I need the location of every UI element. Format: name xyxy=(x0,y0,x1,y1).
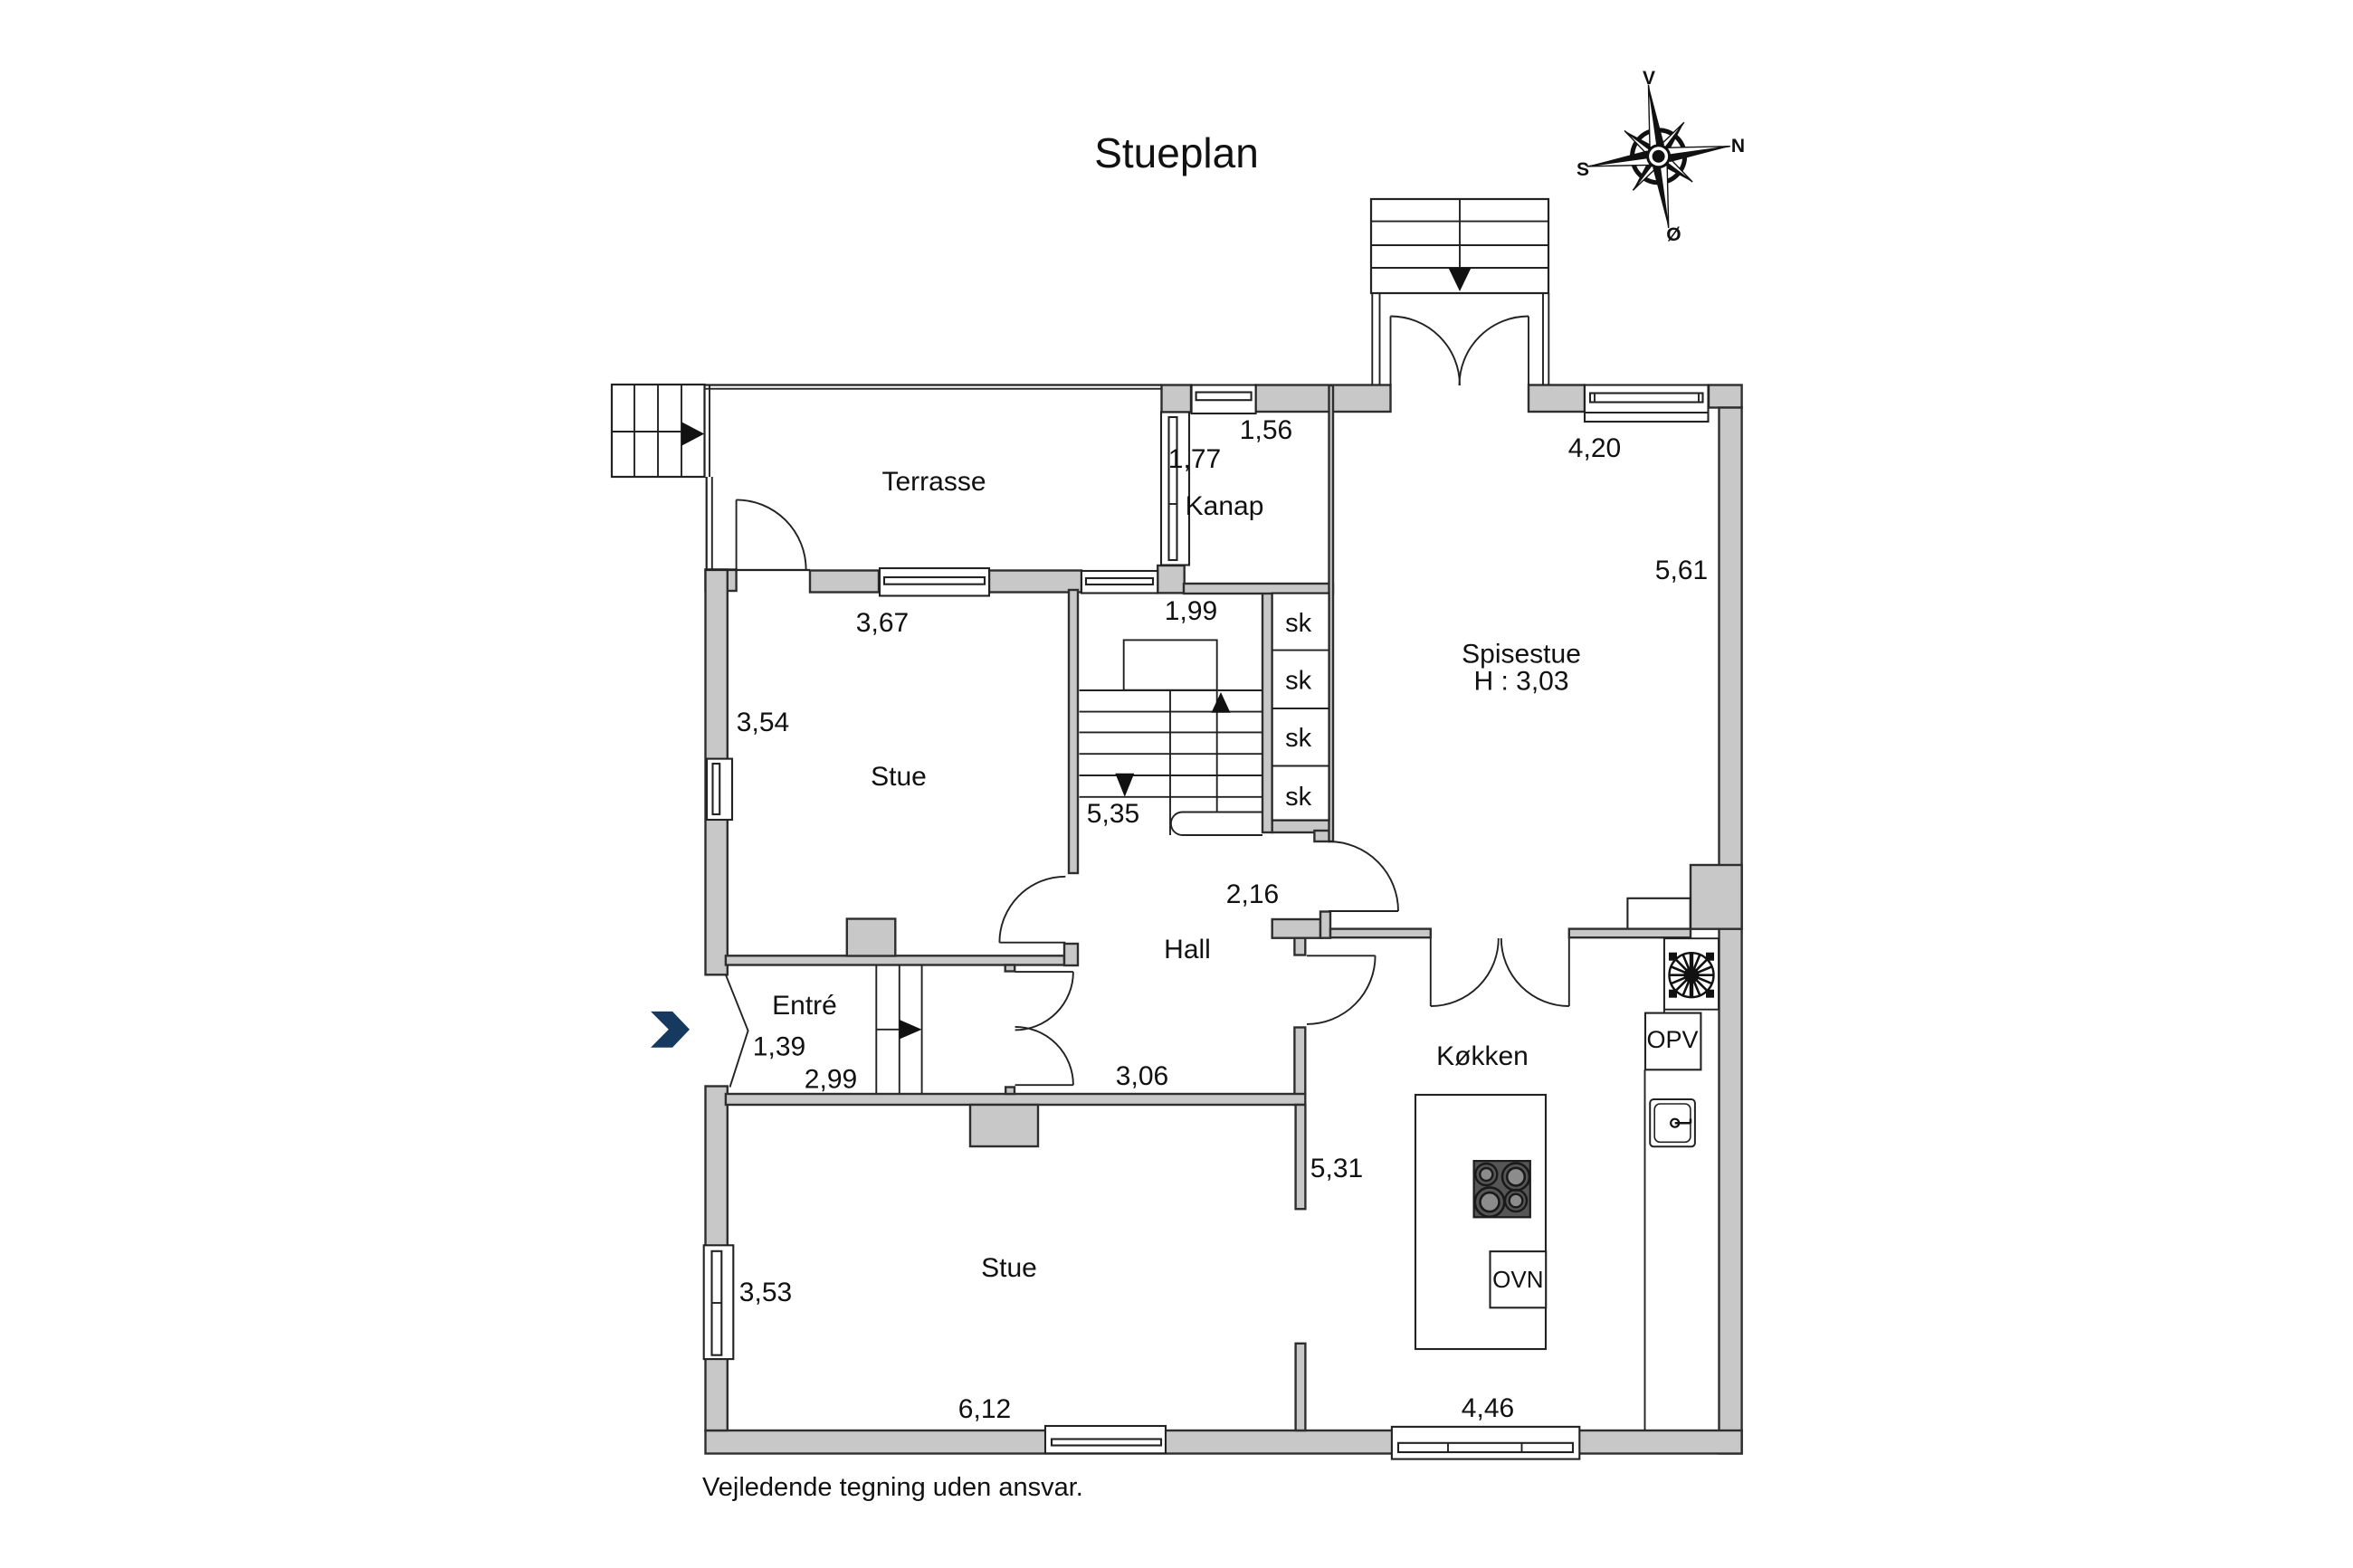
svg-text:Entré: Entré xyxy=(772,991,837,1021)
svg-text:2,16: 2,16 xyxy=(1226,879,1279,909)
svg-text:4,46: 4,46 xyxy=(1462,1393,1514,1423)
svg-text:2,99: 2,99 xyxy=(805,1065,857,1095)
svg-text:3,06: 3,06 xyxy=(1116,1061,1168,1091)
svg-text:Køkken: Køkken xyxy=(1436,1041,1529,1071)
svg-text:1,39: 1,39 xyxy=(753,1032,805,1062)
svg-text:Ø: Ø xyxy=(1666,224,1681,245)
svg-text:1,56: 1,56 xyxy=(1240,415,1292,445)
svg-text:1,77: 1,77 xyxy=(1168,444,1221,474)
svg-text:N: N xyxy=(1731,136,1745,157)
svg-text:sk: sk xyxy=(1285,783,1312,812)
svg-text:Terrasse: Terrasse xyxy=(881,467,986,497)
svg-text:OPV: OPV xyxy=(1646,1026,1698,1053)
svg-text:6,12: 6,12 xyxy=(958,1394,1011,1424)
svg-text:5,35: 5,35 xyxy=(1087,799,1139,829)
svg-text:Kanap: Kanap xyxy=(1186,491,1264,521)
svg-text:Stue: Stue xyxy=(871,762,927,792)
svg-text:5,61: 5,61 xyxy=(1655,556,1708,585)
svg-text:3,53: 3,53 xyxy=(739,1278,792,1307)
svg-text:Vejledende tegning uden ansvar: Vejledende tegning uden ansvar. xyxy=(702,1473,1083,1502)
svg-text:sk: sk xyxy=(1285,609,1312,638)
svg-text:H : 3,03: H : 3,03 xyxy=(1473,667,1568,697)
svg-text:3,54: 3,54 xyxy=(737,708,789,737)
svg-text:Stueplan: Stueplan xyxy=(1094,129,1259,176)
svg-text:3,67: 3,67 xyxy=(856,608,909,638)
svg-text:sk: sk xyxy=(1285,667,1312,696)
svg-text:Stue: Stue xyxy=(981,1253,1037,1283)
svg-text:5,31: 5,31 xyxy=(1310,1154,1363,1183)
svg-text:OVN: OVN xyxy=(1492,1266,1543,1293)
svg-text:1,99: 1,99 xyxy=(1165,596,1217,626)
svg-text:V: V xyxy=(1643,68,1655,89)
svg-text:S: S xyxy=(1577,159,1589,180)
svg-text:4,20: 4,20 xyxy=(1568,433,1621,463)
svg-text:Hall: Hall xyxy=(1164,935,1211,965)
svg-text:sk: sk xyxy=(1285,724,1312,753)
svg-text:Spisestue: Spisestue xyxy=(1462,640,1581,670)
